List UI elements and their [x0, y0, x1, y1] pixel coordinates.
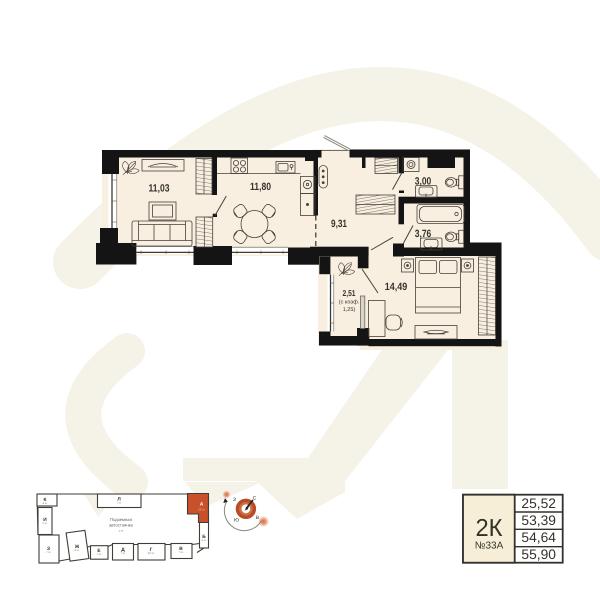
svg-text:7 эт.: 7 эт. [120, 552, 125, 555]
svg-text:7 эт.: 7 эт. [46, 551, 51, 554]
svg-text:8 эт.: 8 эт. [74, 549, 79, 552]
svg-text:55,90: 55,90 [521, 547, 556, 562]
svg-text:3,00: 3,00 [415, 176, 432, 188]
svg-text:5 эт.: 5 эт. [42, 522, 47, 525]
svg-text:9,31: 9,31 [331, 218, 347, 230]
svg-text:1,25): 1,25) [343, 307, 356, 313]
svg-text:30 эт.: 30 эт. [148, 552, 155, 555]
svg-text:4 эт.: 4 эт. [42, 502, 47, 505]
svg-text:2,51: 2,51 [343, 288, 356, 298]
svg-text:54,64: 54,64 [521, 530, 556, 545]
svg-text:7 эт.: 7 эт. [116, 502, 121, 505]
svg-text:11,80: 11,80 [250, 181, 271, 193]
svg-text:7 эт.: 7 эт. [178, 551, 183, 554]
svg-text:3,76: 3,76 [415, 228, 432, 240]
svg-text:4 эт.: 4 эт. [201, 539, 206, 542]
svg-text:Ю: Ю [234, 518, 239, 524]
svg-text:25,52: 25,52 [521, 496, 556, 511]
svg-text:53,39: 53,39 [521, 513, 556, 528]
svg-text:11,03: 11,03 [149, 183, 170, 195]
svg-text:Подземная: Подземная [110, 517, 132, 522]
svg-text:С: С [253, 496, 257, 502]
svg-text:№33А: №33А [475, 541, 504, 552]
svg-text:14,49: 14,49 [385, 281, 408, 293]
svg-text:автостоянка: автостоянка [109, 523, 133, 528]
svg-text:З: З [233, 497, 236, 503]
svg-text:В: В [256, 515, 259, 521]
svg-text:1 эт.: 1 эт. [118, 530, 123, 533]
svg-text:(с коэф.: (с коэф. [339, 300, 360, 306]
svg-text:7 эт.: 7 эт. [96, 553, 101, 556]
svg-text:2К: 2К [476, 515, 504, 542]
svg-text:23 эт: 23 эт [198, 508, 205, 512]
